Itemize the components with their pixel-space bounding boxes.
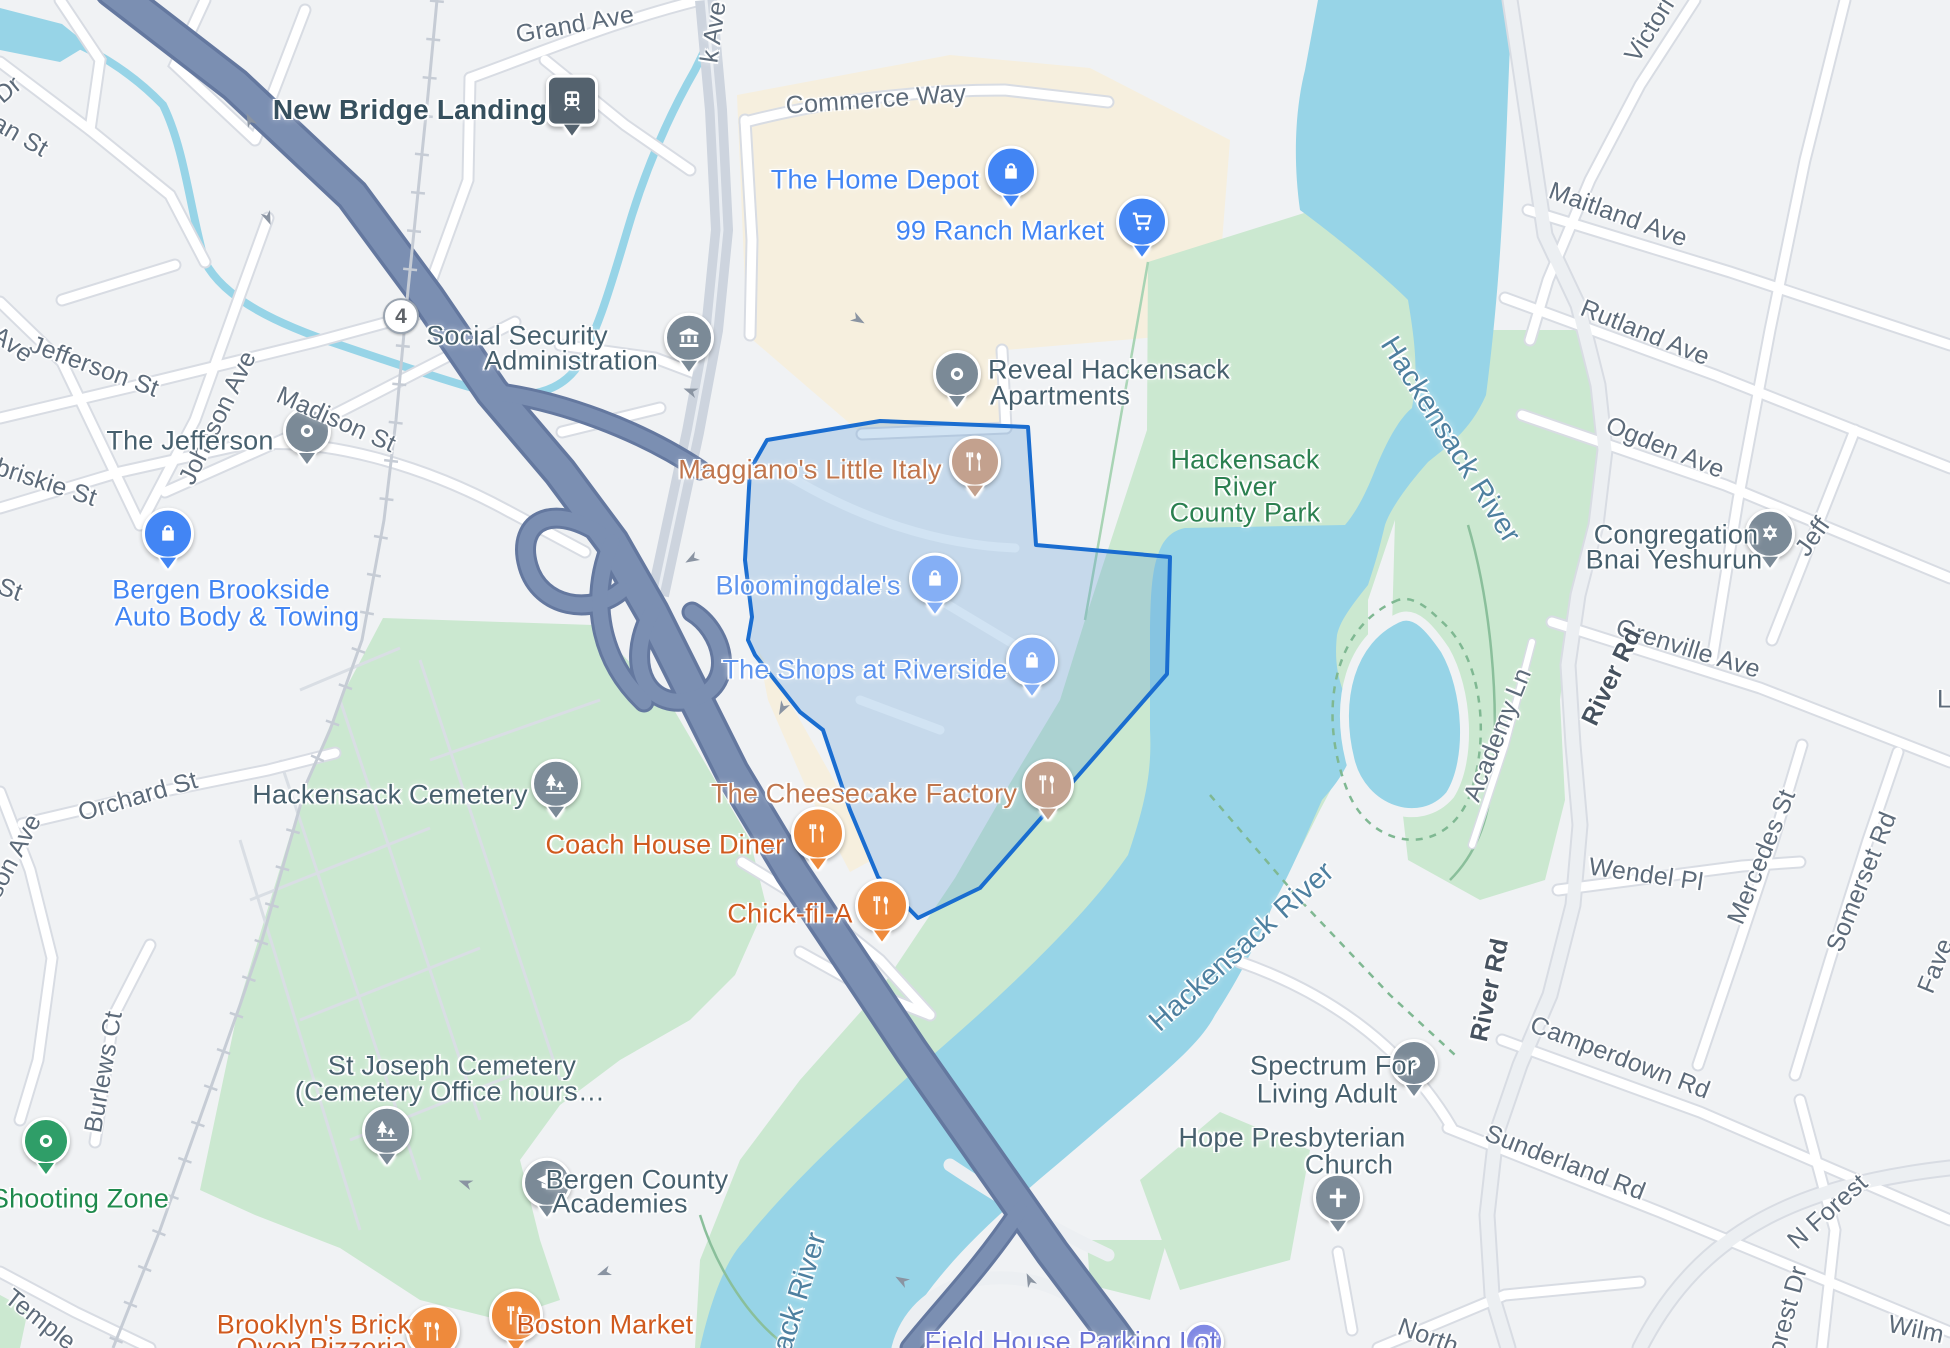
bag-icon xyxy=(999,160,1023,184)
st-joseph-cemetery-pin[interactable] xyxy=(362,1106,412,1165)
pin-tail xyxy=(1406,1085,1422,1096)
cross-icon xyxy=(1326,1186,1350,1210)
label-cheesecake[interactable]: The Cheesecake Factory xyxy=(711,779,1017,810)
tree-icon xyxy=(544,772,568,796)
food-icon xyxy=(963,450,987,474)
hope-church-pin[interactable] xyxy=(1313,1173,1363,1232)
label-st-joseph-2[interactable]: (Cemetery Office hours… xyxy=(295,1077,605,1108)
label-shops-riverside[interactable]: The Shops at Riverside xyxy=(722,655,1007,686)
label-brooklyns-2[interactable]: Oven Pizzeria xyxy=(237,1333,408,1348)
label-boston-market[interactable]: Boston Market xyxy=(517,1310,694,1341)
cart-icon xyxy=(1130,210,1154,234)
label-reveal-2[interactable]: Apartments xyxy=(990,381,1130,412)
label-spectrum-2[interactable]: Living Adult xyxy=(1257,1079,1398,1110)
coach-house-pin[interactable] xyxy=(791,806,845,869)
label-the-jefferson[interactable]: The Jefferson xyxy=(106,426,273,457)
label-99-ranch[interactable]: 99 Ranch Market xyxy=(896,216,1105,247)
bag-icon xyxy=(1020,649,1044,673)
label-maggianos[interactable]: Maggiano's Little Italy xyxy=(678,455,941,486)
pin-tail xyxy=(38,1163,54,1174)
route-4-shield[interactable]: 4 xyxy=(383,298,419,334)
shops-riverside-pin[interactable] xyxy=(1006,635,1058,696)
label-l-fragment: L xyxy=(1937,686,1950,715)
home-depot-pin[interactable] xyxy=(985,146,1037,207)
cheesecake-pin[interactable] xyxy=(1022,759,1074,820)
pin-tail xyxy=(299,453,315,464)
social-security-pin[interactable] xyxy=(664,313,714,372)
maggianos-pin[interactable] xyxy=(949,436,1001,497)
pin-tail xyxy=(1040,809,1056,820)
bag-icon xyxy=(923,567,947,591)
food-icon xyxy=(1036,773,1060,797)
reveal-apartments-pin[interactable] xyxy=(933,350,981,407)
bag-icon xyxy=(156,522,180,546)
hackensack-cemetery-pin[interactable] xyxy=(531,759,581,818)
food-icon xyxy=(421,1319,445,1343)
tree-icon xyxy=(375,1119,399,1143)
bloomingdales-pin[interactable] xyxy=(909,553,961,614)
label-new-bridge-landing[interactable]: New Bridge Landing xyxy=(273,94,547,126)
bank-icon xyxy=(677,326,701,350)
pin-tail xyxy=(548,807,564,818)
pin-tail xyxy=(1330,1221,1346,1232)
label-social-security-2[interactable]: Administration xyxy=(484,346,658,377)
pin-tail xyxy=(874,930,890,941)
pin-tail xyxy=(810,858,826,869)
food-icon xyxy=(870,893,894,917)
pin-tail xyxy=(927,603,943,614)
shooting-zone-pin[interactable] xyxy=(22,1117,70,1174)
label-hackensack-cemetery[interactable]: Hackensack Cemetery xyxy=(252,780,527,811)
pin-tail xyxy=(379,1154,395,1165)
new-bridge-landing-station-icon[interactable] xyxy=(546,75,598,136)
brooklyns-pin[interactable] xyxy=(406,1304,460,1348)
dot-icon xyxy=(36,1131,56,1151)
label-county-park-3[interactable]: County Park xyxy=(1170,498,1321,529)
pin-tail xyxy=(967,486,983,497)
99-ranch-pin[interactable] xyxy=(1116,196,1168,257)
pin-tail xyxy=(949,396,965,407)
food-icon xyxy=(806,821,830,845)
label-bergen-academies-2[interactable]: Academies xyxy=(552,1189,687,1220)
pin-tail xyxy=(564,125,580,136)
train-icon xyxy=(560,89,584,113)
pin-tail xyxy=(160,558,176,569)
pin-tail xyxy=(1134,246,1150,257)
label-coach-house[interactable]: Coach House Diner xyxy=(545,830,784,861)
dot-icon xyxy=(947,364,967,384)
label-bergen-brookside-2[interactable]: Auto Body & Towing xyxy=(115,602,360,633)
pin-tail xyxy=(1024,685,1040,696)
route4-icon: 4 xyxy=(395,306,407,327)
star-icon: ✡ xyxy=(1762,524,1779,544)
pin-tail xyxy=(508,1340,524,1348)
label-field-house[interactable]: Field House Parking Lot xyxy=(925,1327,1218,1348)
label-home-depot[interactable]: The Home Depot xyxy=(771,165,979,196)
label-chick-fil-a[interactable]: Chick-fil-A xyxy=(727,899,852,930)
pin-tail xyxy=(1003,196,1019,207)
pin-tail xyxy=(681,361,697,372)
pin-tail xyxy=(1762,557,1778,568)
chick-fil-a-pin[interactable] xyxy=(855,878,909,941)
label-hope-church-2[interactable]: Church xyxy=(1305,1150,1393,1181)
label-shooting-zone[interactable]: Shooting Zone xyxy=(0,1184,169,1215)
label-spectrum-1[interactable]: Spectrum For xyxy=(1250,1051,1416,1082)
label-congregation-2[interactable]: Bnai Yeshurun xyxy=(1586,545,1763,576)
label-bloomingdales[interactable]: Bloomingdale's xyxy=(715,571,900,602)
map-canvas[interactable]: ✡P4 Grand Avek AveCommerce WayDran StMad… xyxy=(0,0,1950,1348)
bergen-brookside-pin[interactable] xyxy=(142,508,194,569)
